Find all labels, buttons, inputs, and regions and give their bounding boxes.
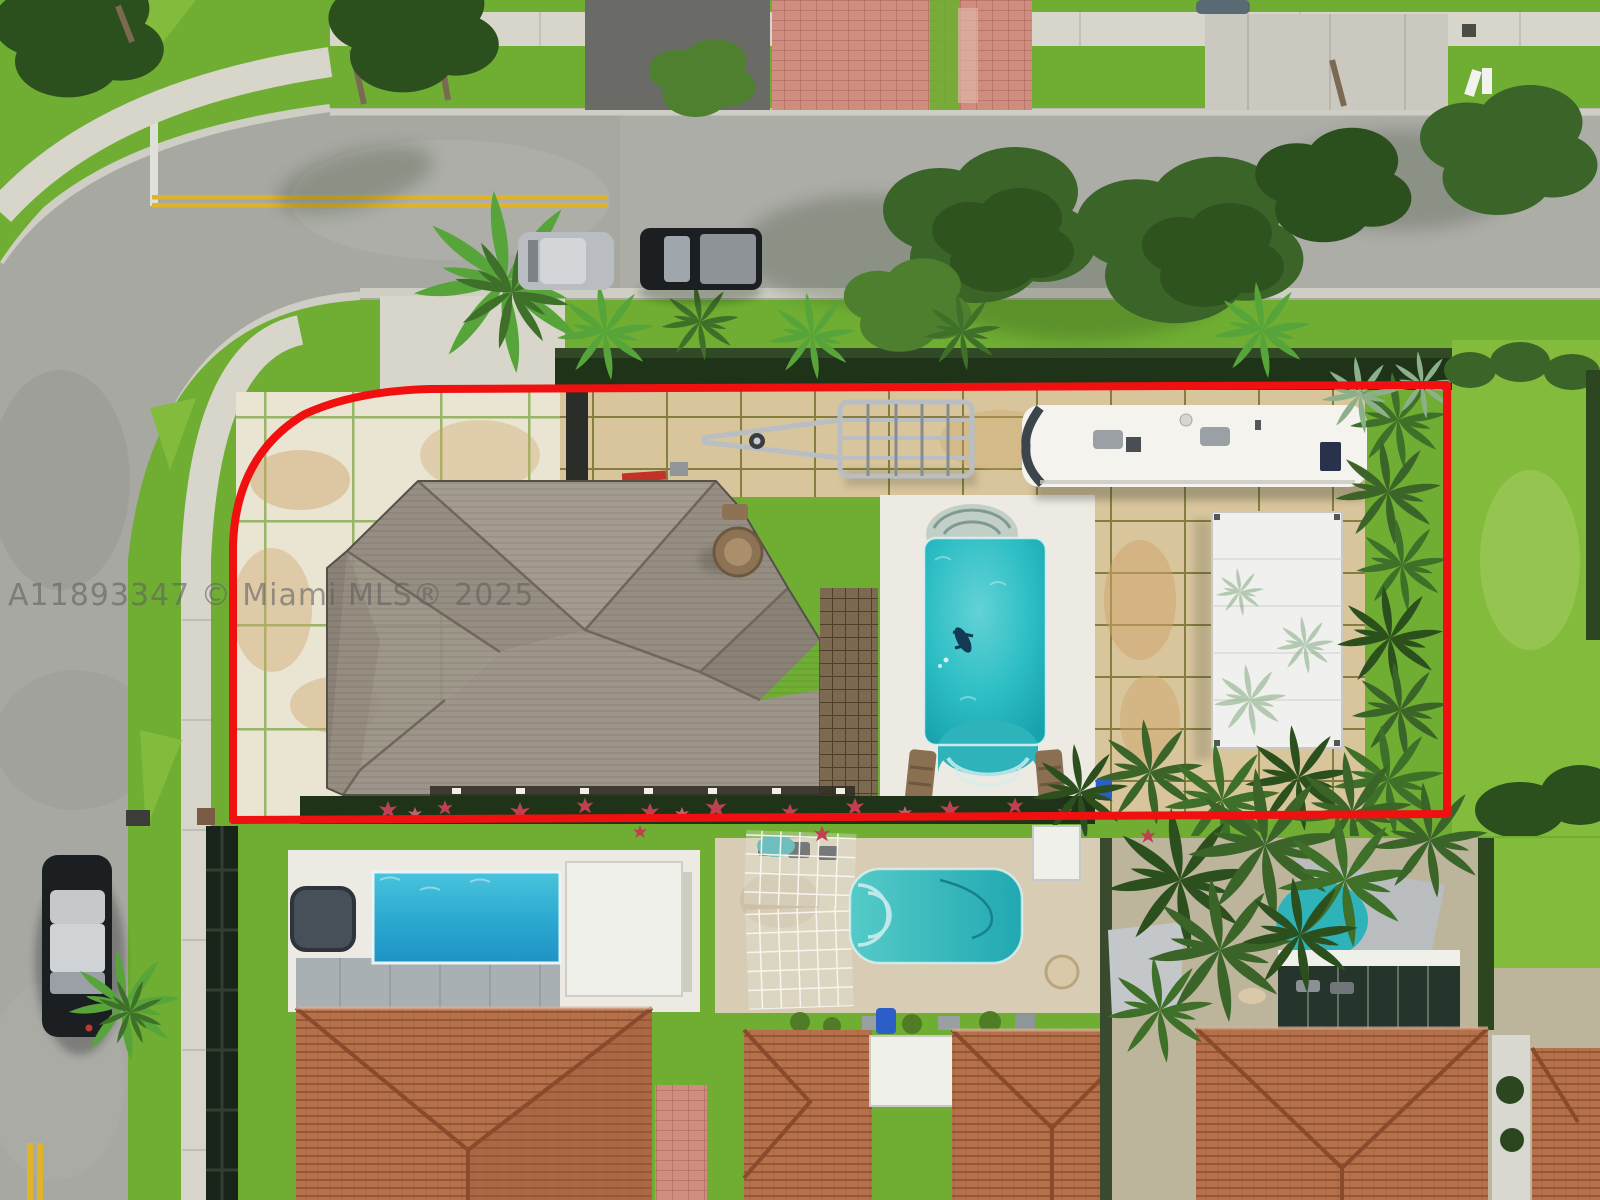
n3-roof <box>1196 1028 1488 1200</box>
mls-watermark: A11893347 © Miami MLS® 2025 <box>8 578 535 613</box>
lattice-pergola <box>820 588 878 798</box>
rv-ac-unit <box>1093 430 1123 449</box>
drain-box <box>1462 24 1476 37</box>
swimming-pool <box>924 504 1046 785</box>
parked-pickup <box>638 228 762 304</box>
n2-blue-barrel <box>876 1008 896 1034</box>
utility-pad <box>197 808 215 825</box>
n2-shed <box>1033 826 1080 880</box>
parked-car <box>518 232 614 290</box>
n3-roof-right <box>1492 1035 1600 1200</box>
north-verge <box>330 0 1600 110</box>
n2-lattice-frames <box>744 830 857 1010</box>
aerial-listing-photo: A11893347 © Miami MLS® 2025 <box>0 0 1600 1200</box>
n1-hot-tub <box>292 888 354 950</box>
n2-n3-fence <box>1100 838 1112 1200</box>
east-lawn <box>1444 340 1600 838</box>
aerial-scene: A11893347 © Miami MLS® 2025 <box>0 0 1600 1200</box>
n1-roof <box>296 1008 652 1200</box>
rv-motorhome <box>1022 405 1367 487</box>
distant-car <box>1196 0 1250 14</box>
right-edge-hedge <box>1586 370 1600 640</box>
n2-pool <box>850 869 1022 963</box>
concrete-driveway <box>1205 14 1448 110</box>
mailbox <box>126 810 150 826</box>
n1-shed <box>566 862 692 996</box>
rv-ac-unit <box>1200 427 1230 446</box>
n1-pool <box>373 872 560 963</box>
rv-solar-panel <box>1320 442 1341 471</box>
grill <box>670 462 688 476</box>
n2-spa <box>1046 956 1078 988</box>
white-canopy <box>1194 512 1342 760</box>
screen-fence <box>206 826 238 1200</box>
gate-post <box>566 390 588 482</box>
red-paver-driveway <box>772 0 1032 110</box>
n3-lawn <box>1492 838 1600 968</box>
neighbor1 <box>288 850 707 1200</box>
